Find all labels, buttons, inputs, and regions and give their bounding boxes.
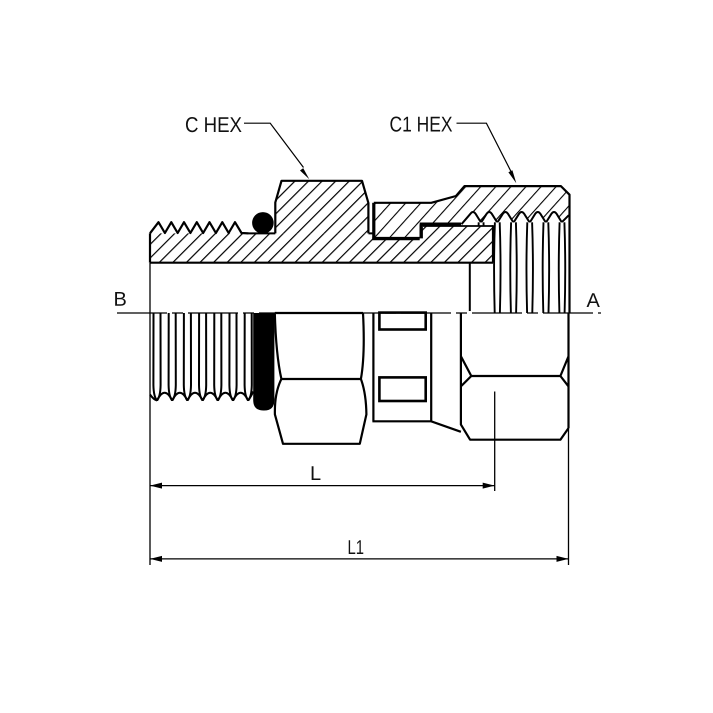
svg-text:L: L bbox=[310, 463, 321, 485]
svg-text:C1 HEX: C1 HEX bbox=[389, 113, 452, 137]
svg-text:C HEX: C HEX bbox=[185, 113, 242, 137]
svg-text:A: A bbox=[586, 290, 600, 312]
svg-text:B: B bbox=[113, 289, 126, 311]
svg-text:L1: L1 bbox=[347, 537, 364, 559]
